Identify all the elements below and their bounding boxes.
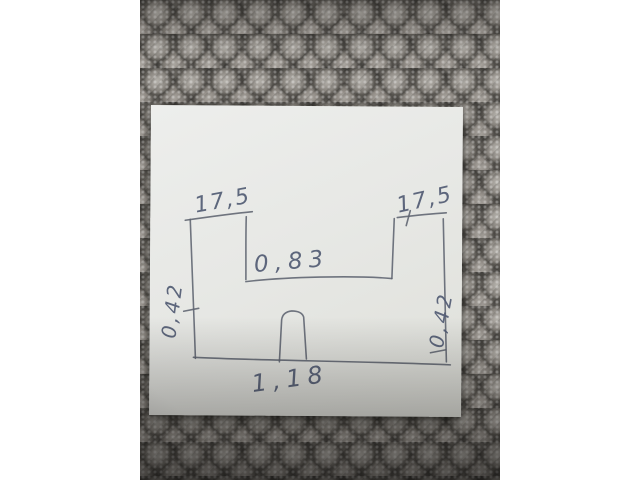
- right-inner-edge: [392, 219, 394, 279]
- sketch-paper: 17,5 17,5 0,83 0,42 0,42 1,18: [149, 105, 463, 417]
- left-outer-edge: [189, 219, 196, 358]
- left-inner-edge: [246, 217, 247, 280]
- arch-notch: [279, 311, 306, 362]
- inner-span-line: [246, 276, 392, 282]
- left-height-tick: [184, 308, 199, 311]
- carpet-photo: 17,5 17,5 0,83 0,42 0,42 1,18: [140, 0, 500, 480]
- photo-frame: 17,5 17,5 0,83 0,42 0,42 1,18: [0, 0, 640, 480]
- right-height-tick: [430, 350, 445, 353]
